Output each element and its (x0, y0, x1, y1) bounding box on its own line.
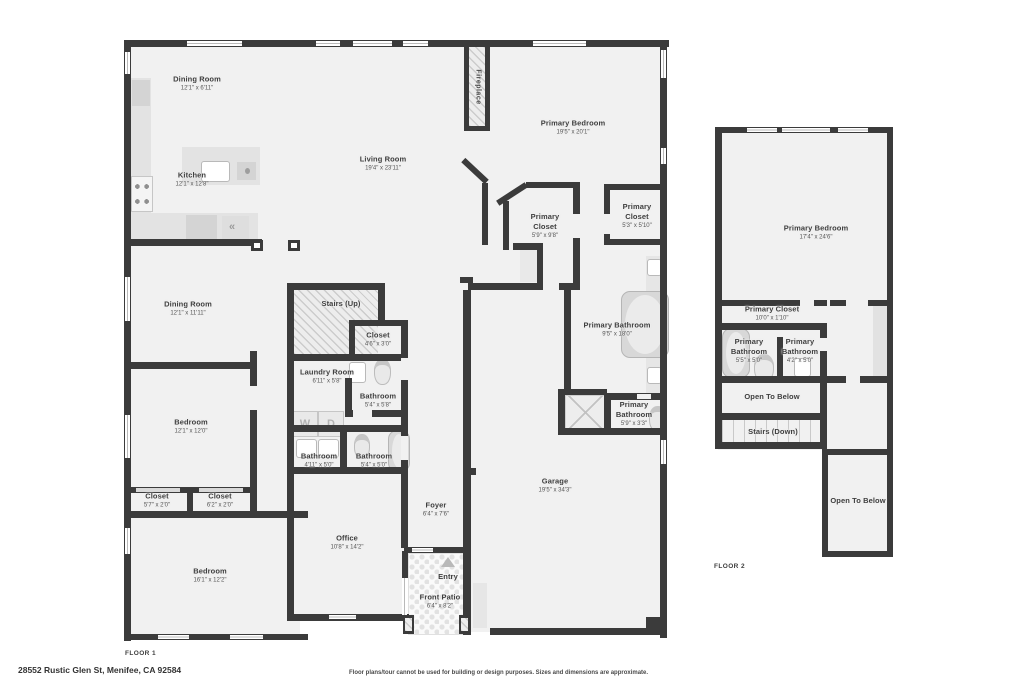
window-marker (125, 528, 130, 554)
wall (287, 354, 408, 361)
wall (604, 184, 662, 190)
wall (822, 449, 828, 557)
property-address: 28552 Rustic Glen St, Menifee, CA 92584 (18, 665, 181, 675)
door-opening (250, 386, 257, 410)
floor-plan-page: « W D (0, 0, 1024, 683)
window-marker (125, 277, 130, 321)
window-marker (661, 50, 666, 78)
room-label-primary-closet-a: Primary Closet 5'9" x 9'8" (520, 212, 570, 240)
dishwasher-drop-icon (245, 168, 250, 174)
window-marker (230, 635, 263, 639)
room-label-living-room: Living Room 19'4" x 23'11" (360, 155, 407, 174)
window-marker (316, 41, 340, 46)
floor1-label: FLOOR 1 (125, 650, 156, 657)
room-label-open-to-below-b: Open To Below (830, 496, 885, 506)
door-swing (520, 249, 537, 282)
wall (503, 201, 509, 250)
room-label-primary-closet-f2: Primary Closet 10'0" x 1'10" (745, 305, 799, 324)
wall (715, 413, 827, 420)
floor2-label: FLOOR 2 (714, 563, 745, 570)
window-marker (158, 635, 189, 639)
wall (564, 288, 571, 395)
wall (349, 320, 355, 360)
wall (526, 182, 578, 188)
room-label-garage: Garage 19'5" x 34'3" (539, 477, 572, 496)
wall (604, 239, 662, 245)
wall (468, 283, 540, 290)
room-label-closet-hall: Closet 4'6" x 3'0" (365, 331, 391, 350)
room-label-primary-bath-b-f2: Primary Bathroom 4'2" x 5'0" (772, 337, 828, 365)
wall-post-center (291, 243, 297, 248)
room-label-kitchen: Kitchen 12'1" x 12'8" (176, 171, 209, 190)
window-marker (782, 128, 830, 132)
door-opening (637, 394, 651, 399)
room-label-primary-bedroom: Primary Bedroom 19'5" x 20'1" (541, 119, 605, 138)
room-label-foyer: Foyer 6'4" x 7'6" (423, 501, 449, 520)
window-marker (125, 52, 130, 74)
wall (482, 183, 488, 245)
room-label-entry: Entry (438, 572, 458, 582)
wall (715, 323, 827, 330)
entry-arrow-icon (441, 557, 455, 567)
wall-post-center (254, 243, 260, 248)
wall (860, 376, 893, 383)
window-marker (125, 415, 130, 458)
door-opening (401, 358, 408, 380)
room-label-fireplace: Fireplace (475, 69, 482, 104)
window-marker (661, 440, 666, 464)
wall (558, 389, 607, 395)
wall (463, 290, 471, 635)
wall (124, 239, 262, 246)
refrigerator-icon (132, 80, 150, 106)
wardrobe-strip (873, 305, 887, 377)
floor2-floor-area (718, 130, 890, 450)
room-label-office: Office 10'8" x 14'2" (331, 534, 364, 553)
room-label-primary-closet-b: Primary Closet 5'3" x 5'10" (612, 202, 662, 230)
window-marker (329, 615, 356, 619)
wall (124, 362, 257, 369)
wall (402, 551, 408, 578)
wall (463, 468, 476, 475)
room-label-closet-right: Closet 6'2" x 2'0" (207, 492, 233, 511)
wall (822, 551, 893, 557)
window-marker (187, 41, 242, 46)
floor1-floor-area (404, 434, 466, 554)
room-label-primary-bath-a-f2: Primary Bathroom 5'5" x 5'0" (721, 337, 777, 365)
wall (887, 127, 893, 557)
window-marker (838, 128, 868, 132)
wall (715, 442, 827, 449)
door-opening (573, 214, 580, 238)
door-opening (800, 300, 814, 306)
door-opening (401, 436, 408, 460)
room-label-bedroom-bottom: Bedroom 16'1" x 12'2" (193, 567, 227, 586)
wall (777, 127, 782, 133)
room-label-primary-bedroom-f2: Primary Bedroom 17'4" x 24'6" (784, 224, 848, 243)
room-label-bathroom-right: Bathroom 5'4" x 5'0" (356, 452, 392, 471)
vent-glyph-icon: « (229, 222, 235, 233)
wall (660, 40, 667, 638)
stove-icon (131, 176, 153, 212)
window-marker (353, 41, 392, 46)
front-door-marker (412, 548, 433, 552)
room-label-bedroom-mid: Bedroom 12'1" x 12'0" (174, 418, 208, 437)
disclaimer-text: Floor plans/tour cannot be used for buil… (349, 670, 648, 676)
wall (124, 634, 308, 640)
room-label-laundry: Laundry Room 6'11" x 5'8" (300, 368, 354, 387)
room-label-primary-bathroom-wc: Primary Bathroom 5'9" x 3'3" (606, 400, 662, 428)
wall (558, 428, 667, 435)
toilet-icon (374, 359, 391, 385)
window-marker (402, 578, 407, 615)
wall (868, 300, 887, 306)
floor1-floor-area (128, 434, 300, 637)
wall (490, 628, 667, 635)
wall (401, 320, 408, 548)
wall (250, 351, 257, 492)
garage-door-marker (473, 583, 487, 628)
wall (715, 376, 846, 383)
door-opening (353, 410, 372, 417)
room-label-bathroom-left: Bathroom 4'11" x 5'0" (301, 452, 337, 471)
wall (537, 243, 543, 290)
room-label-open-to-below-a: Open To Below (744, 392, 799, 402)
vent-icon (222, 216, 249, 239)
wall (349, 320, 408, 326)
room-label-closet-left: Closet 5'7" x 2'0" (144, 492, 170, 511)
room-label-stairs-down: Stairs (Down) (748, 427, 798, 437)
shower-icon (565, 395, 606, 430)
wall (646, 617, 667, 630)
wall (287, 283, 294, 621)
floor1-floor-area (464, 434, 664, 632)
door-opening (604, 214, 610, 234)
wall (715, 127, 722, 448)
window-marker (403, 41, 428, 46)
patio-post-hatch (405, 618, 412, 631)
room-label-dining-room-mid: Dining Room 12'1" x 11'11" (164, 300, 212, 319)
wall (822, 449, 893, 455)
room-label-stairs-up: Stairs (Up) (321, 299, 360, 309)
window-marker (661, 148, 666, 164)
wall (287, 283, 385, 290)
wall (287, 425, 408, 432)
washer-icon: W (292, 411, 318, 437)
room-label-front-patio: Front Patio 6'4" x 8'2" (420, 593, 461, 612)
wall (830, 127, 838, 133)
window-marker (747, 128, 777, 132)
wall (830, 300, 846, 306)
room-label-bathroom-upper: Bathroom 5'4" x 5'8" (360, 392, 396, 411)
patio-post-hatch (461, 618, 468, 631)
window-marker (533, 41, 586, 46)
room-label-primary-bathroom: Primary Bathroom 9'5" x 18'0" (583, 321, 650, 340)
oven-icon (186, 215, 217, 240)
room-label-dining-room-top: Dining Room 12'1" x 6'11" (173, 75, 221, 94)
wall (124, 511, 308, 518)
